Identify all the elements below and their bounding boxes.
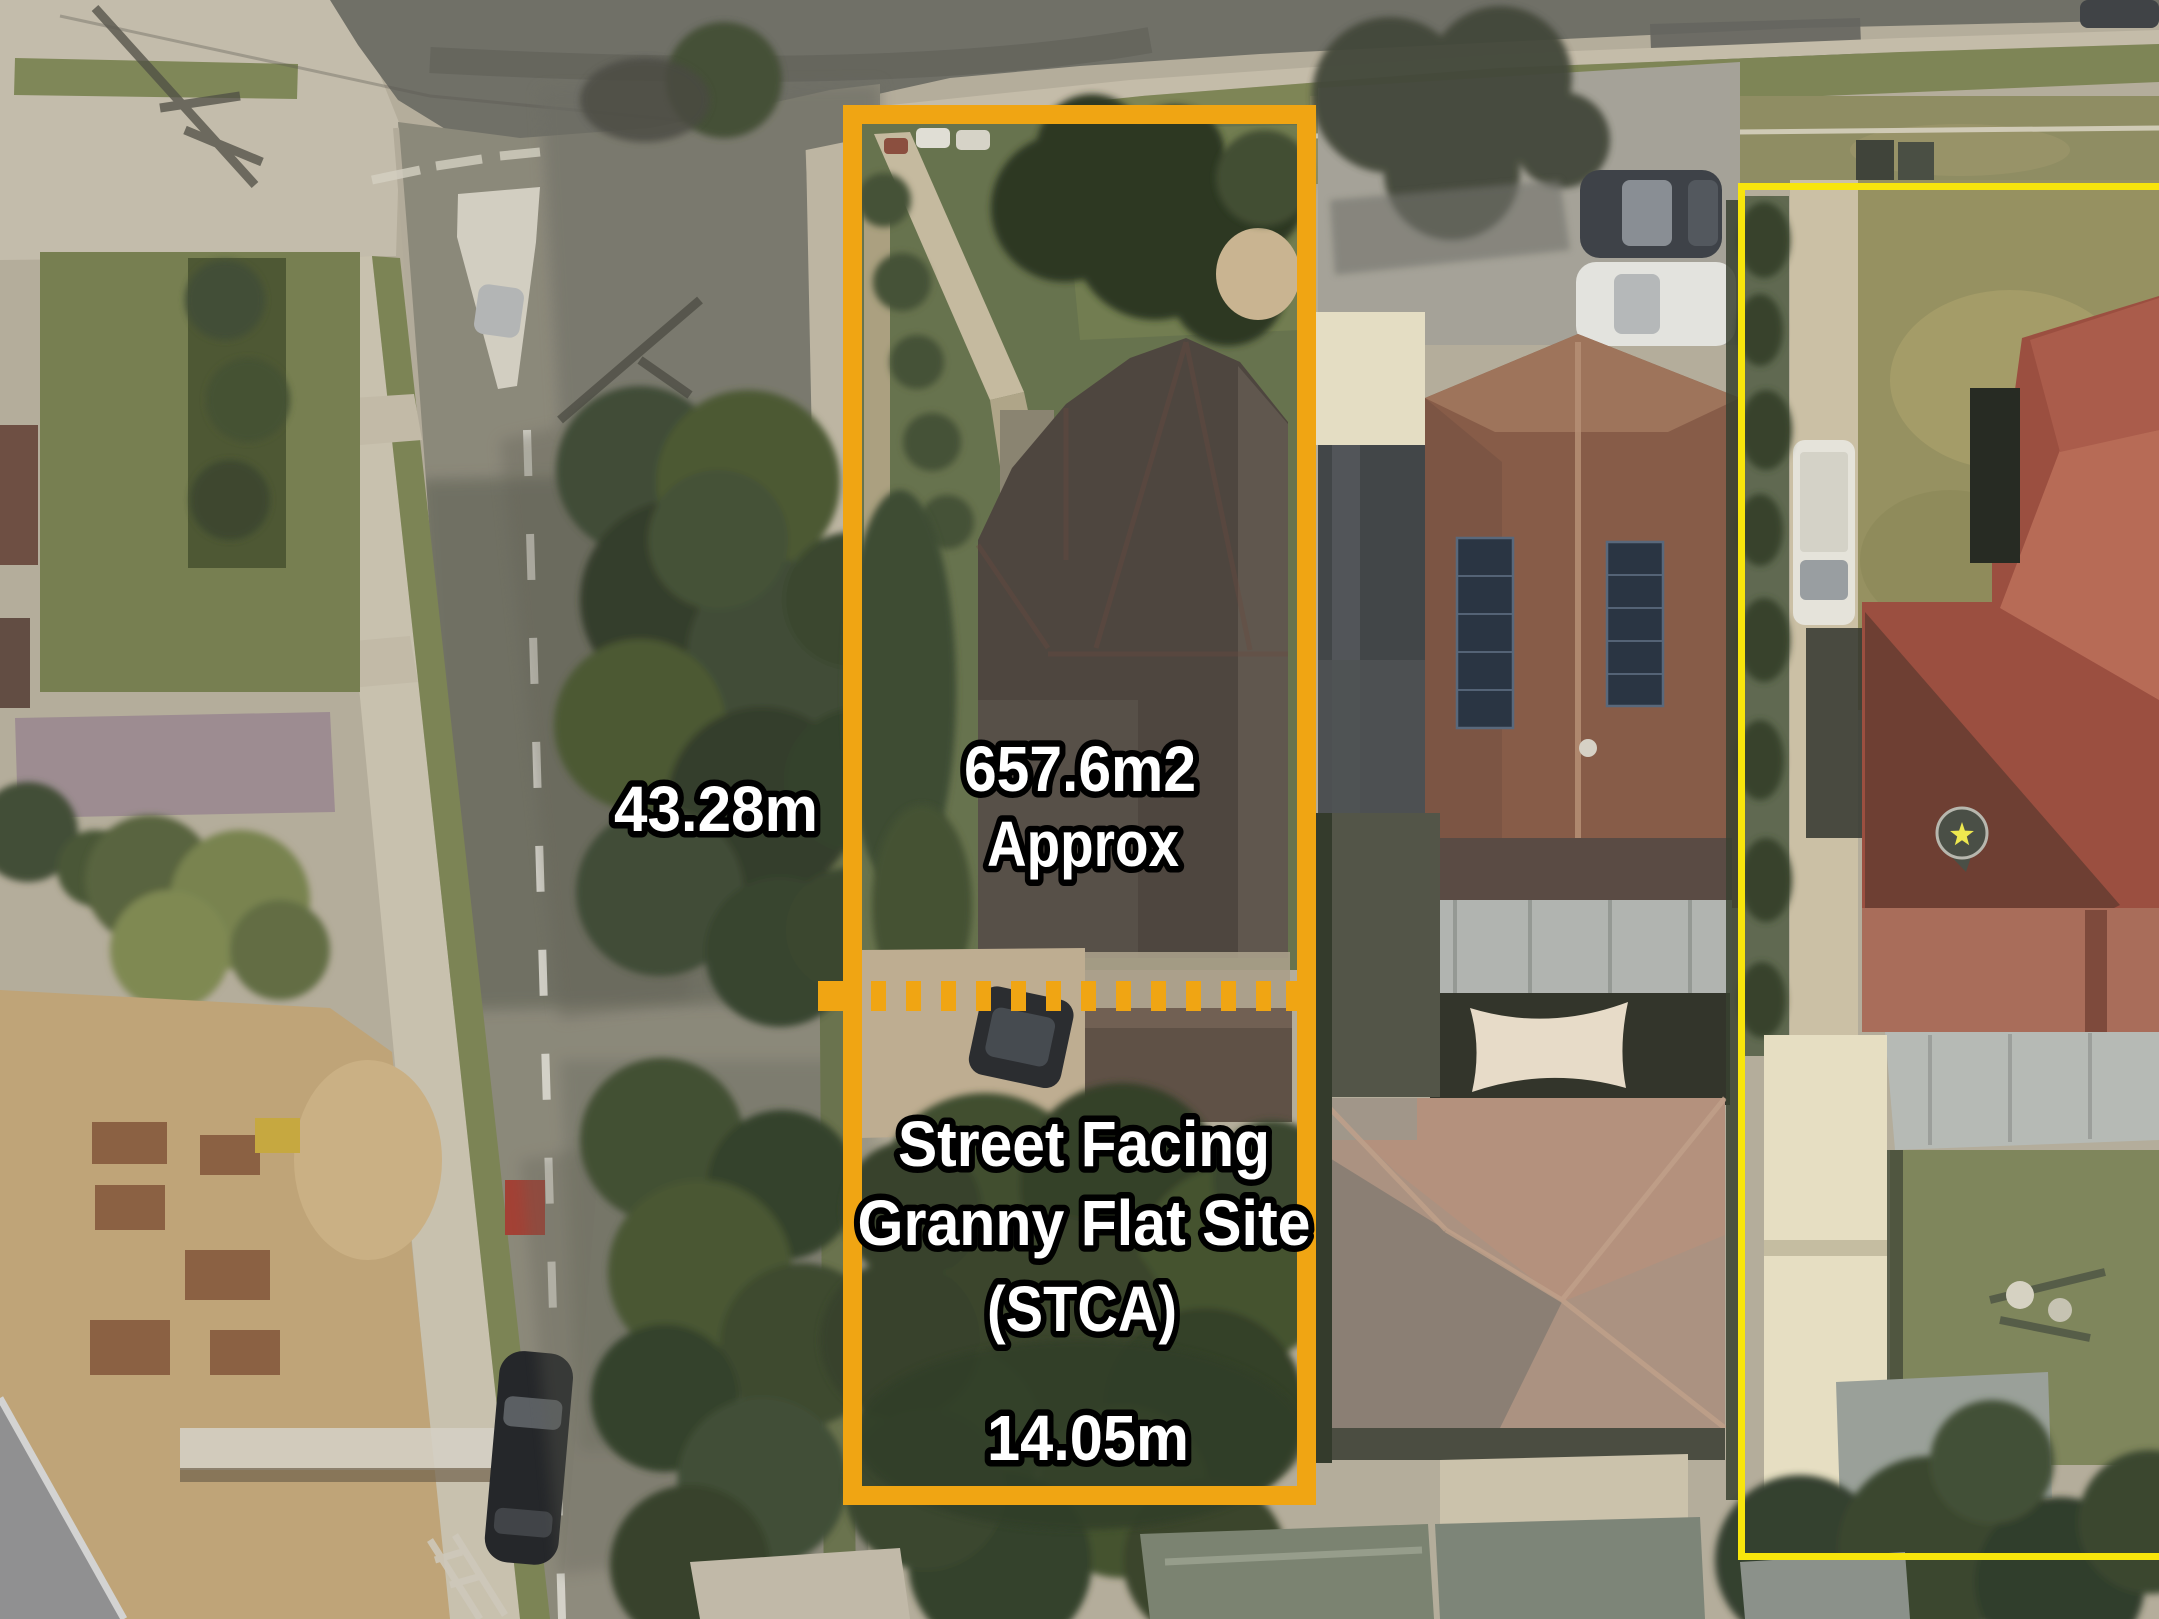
svg-text:43.28m: 43.28m bbox=[614, 773, 818, 845]
svg-text:Street Facing: Street Facing bbox=[898, 1108, 1270, 1180]
svg-text:Granny Flat Site: Granny Flat Site bbox=[858, 1187, 1311, 1259]
svg-text:(STCA): (STCA) bbox=[987, 1273, 1177, 1345]
svg-text:657.6m2: 657.6m2 bbox=[964, 733, 1196, 805]
svg-text:Approx: Approx bbox=[987, 808, 1179, 880]
svg-text:14.05m: 14.05m bbox=[987, 1402, 1189, 1474]
